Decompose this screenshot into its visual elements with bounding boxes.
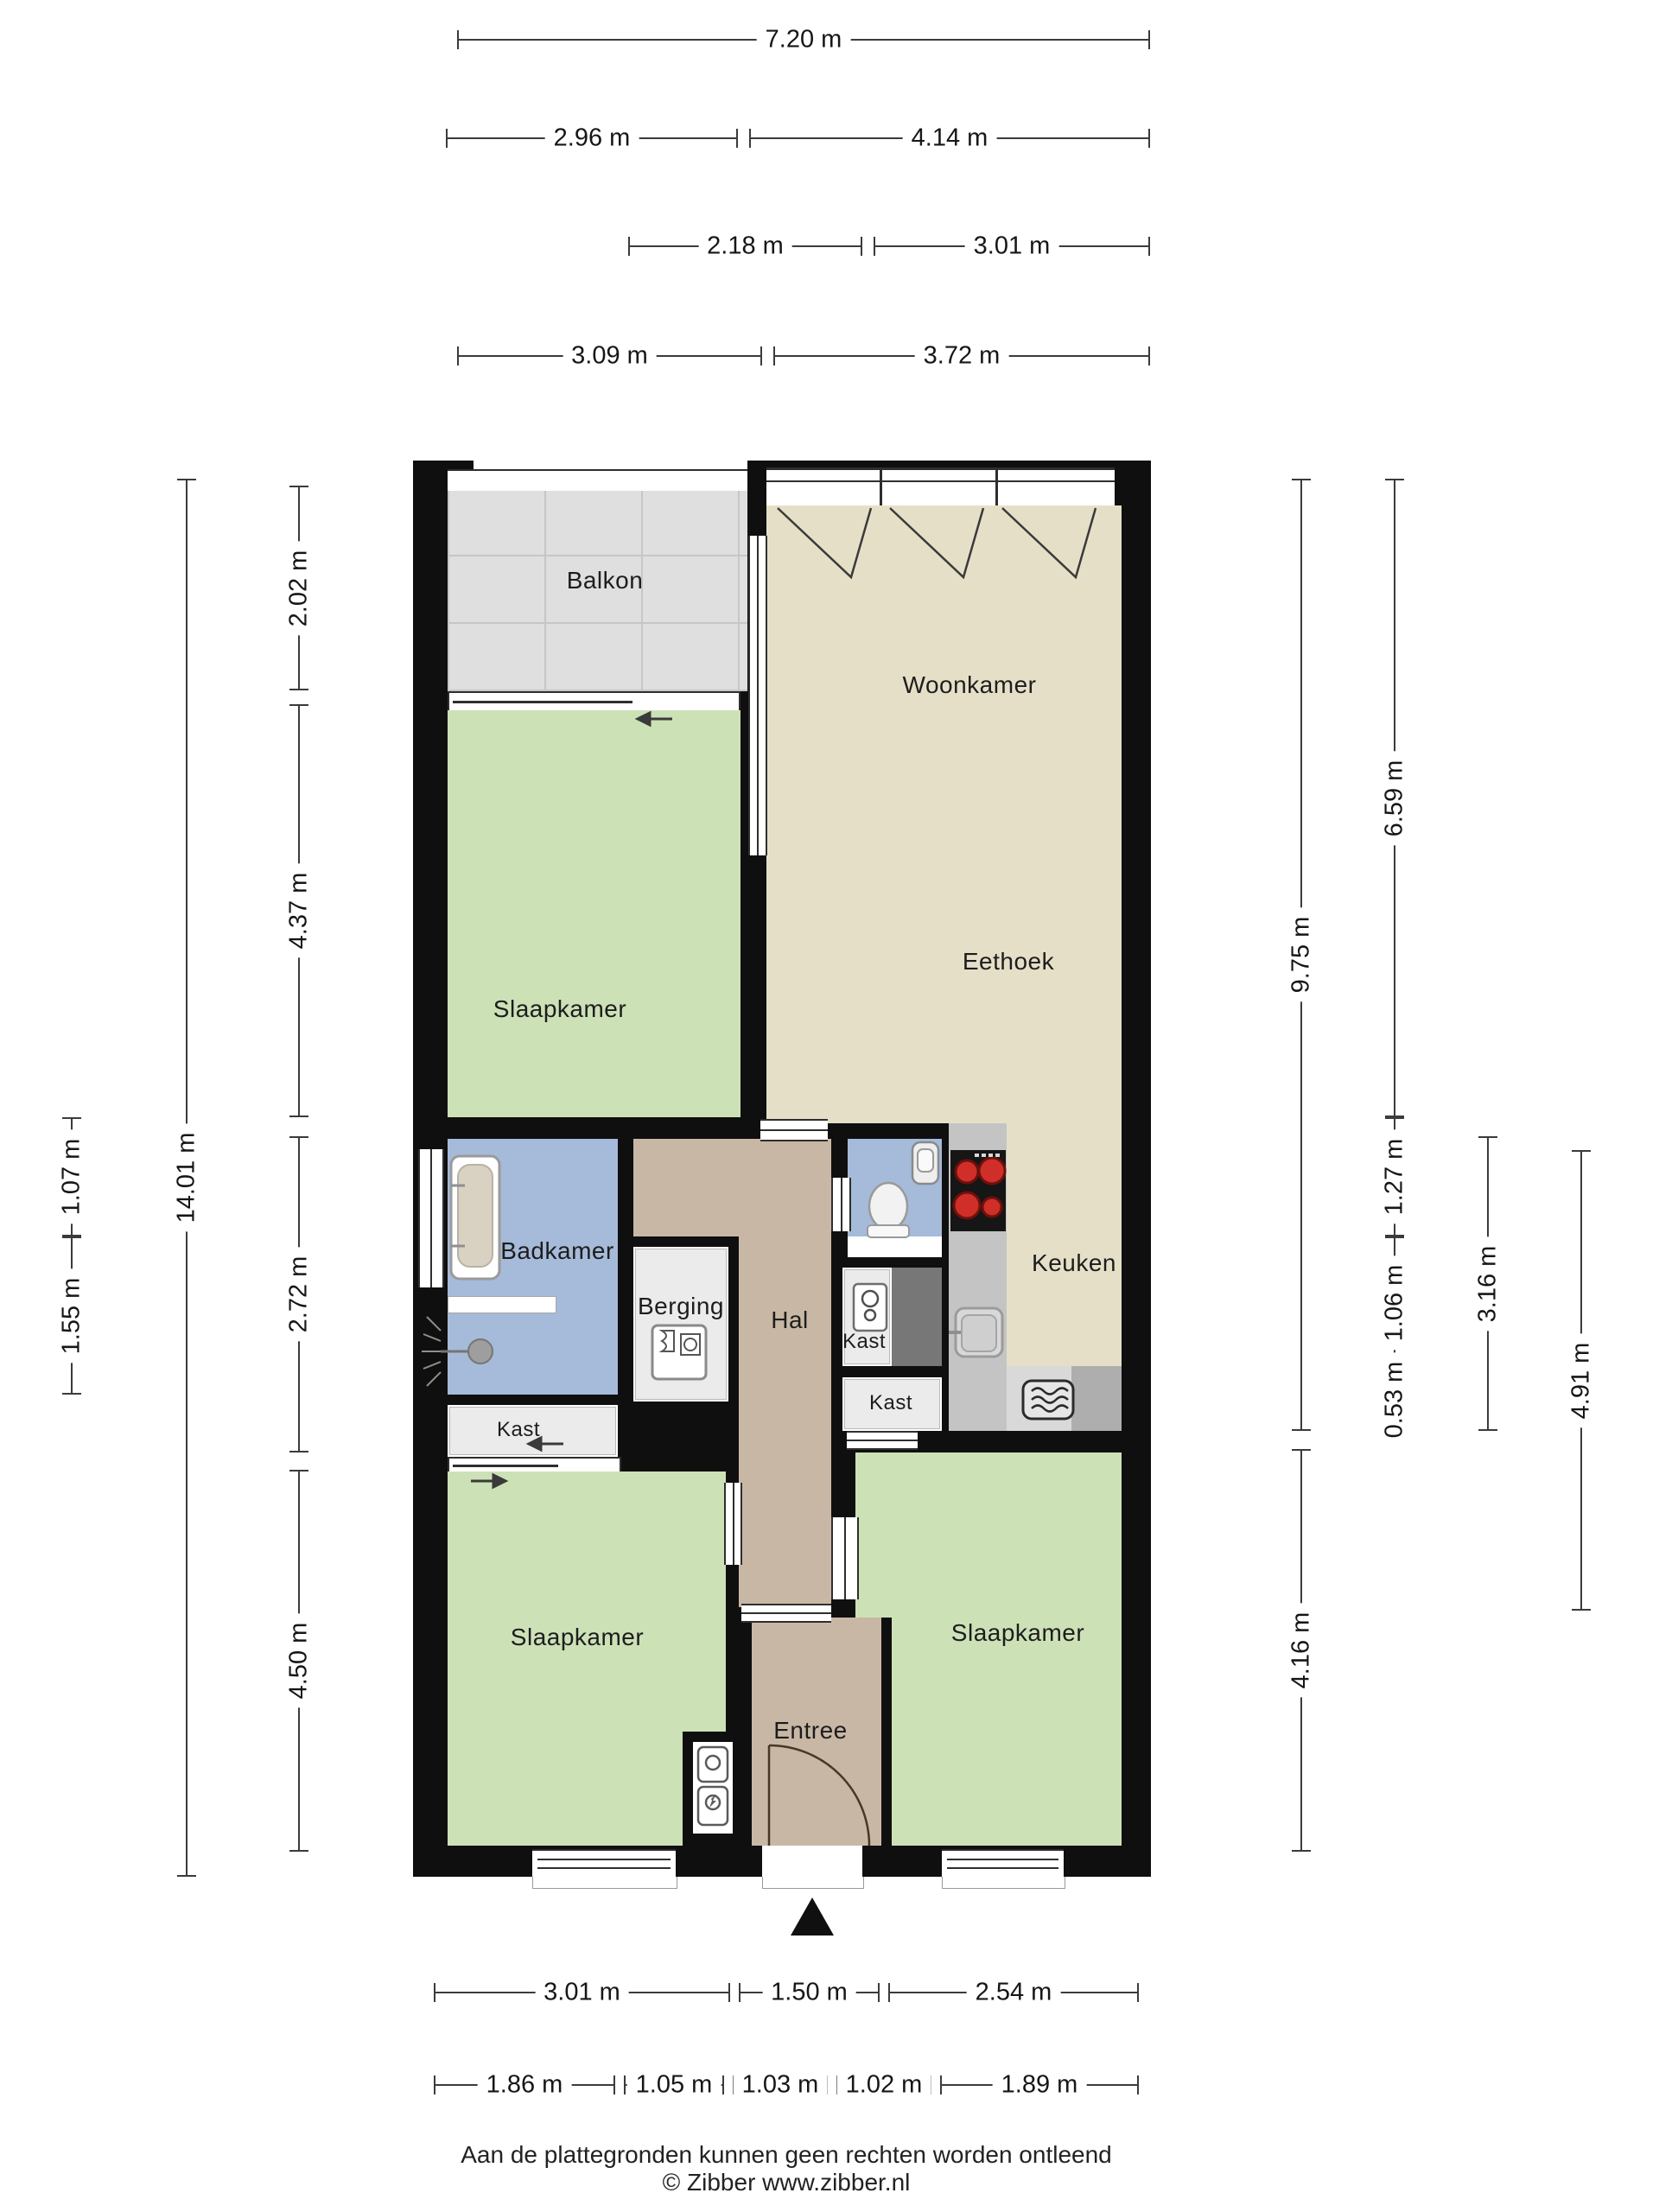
dimension-label: 4.50 m bbox=[285, 1614, 314, 1708]
room-label-balkon: Balkon bbox=[567, 567, 644, 594]
dimension-line-1.07-m: 1.07 m bbox=[57, 1117, 86, 1236]
entrance-arrow bbox=[791, 1897, 834, 1935]
dimension-line-1.55-m: 1.55 m bbox=[57, 1236, 86, 1395]
dimension-line-3.72-m: 3.72 m bbox=[773, 341, 1150, 371]
dimension-label: 4.16 m bbox=[1287, 1604, 1316, 1698]
dimension-label: 9.75 m bbox=[1287, 908, 1316, 1002]
dimension-line-4.16-m: 4.16 m bbox=[1287, 1449, 1316, 1852]
key-cabinet-icon bbox=[854, 1284, 887, 1331]
room-label-kast-badkamer: Kast bbox=[497, 1418, 540, 1442]
dimension-line-1.03-m: 1.03 m bbox=[733, 2070, 828, 2100]
dimension-label: 2.02 m bbox=[285, 541, 314, 635]
room-label-slaapkamer-rechts: Slaapkamer bbox=[951, 1619, 1084, 1647]
microwave-icon bbox=[1023, 1381, 1073, 1419]
meter-box-icons bbox=[698, 1747, 728, 1825]
dimension-line-3.09-m: 3.09 m bbox=[457, 341, 762, 371]
dimension-line-4.14-m: 4.14 m bbox=[749, 124, 1150, 153]
stove-icon bbox=[950, 1150, 1006, 1231]
toilet-sink-icon bbox=[912, 1142, 938, 1184]
dimension-line-1.05-m: 1.05 m bbox=[624, 2070, 724, 2100]
dimension-line-1.86-m: 1.86 m bbox=[434, 2070, 615, 2100]
dimension-label: 3.09 m bbox=[563, 342, 657, 371]
dimension-line-4.37-m: 4.37 m bbox=[284, 704, 314, 1117]
footer-line1: Aan de plattegronden kunnen geen rechten… bbox=[461, 2141, 1111, 2168]
room-label-entree: Entree bbox=[773, 1717, 848, 1745]
dimension-label: 1.03 m bbox=[734, 2071, 828, 2100]
dimension-label: 4.14 m bbox=[903, 124, 997, 153]
dimension-line-2.18-m: 2.18 m bbox=[628, 232, 862, 261]
slide-arrow-icons bbox=[471, 713, 672, 1487]
dimension-label: 2.96 m bbox=[545, 124, 639, 153]
dimension-label: 7.20 m bbox=[757, 26, 851, 54]
dimension-line-4.91-m: 4.91 m bbox=[1567, 1150, 1596, 1611]
dimension-line-2.96-m: 2.96 m bbox=[446, 124, 738, 153]
dimension-label: 2.18 m bbox=[698, 232, 792, 261]
dimension-line-2.02-m: 2.02 m bbox=[284, 486, 314, 690]
dimension-line-3.16-m: 3.16 m bbox=[1473, 1136, 1503, 1431]
room-label-kast-hal: Kast bbox=[842, 1330, 886, 1354]
dimension-label: 14.01 m bbox=[173, 1124, 201, 1232]
dimension-label: 1.07 m bbox=[58, 1130, 86, 1224]
dimension-line-1.27-m: 1.27 m bbox=[1380, 1117, 1409, 1236]
dimension-line-3.01-m: 3.01 m bbox=[874, 232, 1150, 261]
dimension-label: 3.01 m bbox=[965, 232, 1059, 261]
dimension-label: 4.91 m bbox=[1567, 1333, 1596, 1427]
dimension-label: 1.27 m bbox=[1381, 1130, 1409, 1224]
room-label-kast-keuken: Kast bbox=[869, 1391, 912, 1415]
dimension-label: 4.37 m bbox=[285, 864, 314, 958]
dimension-label: 1.50 m bbox=[762, 1979, 856, 2007]
dimension-label: 3.01 m bbox=[535, 1979, 629, 2007]
dimension-label: 1.55 m bbox=[58, 1268, 86, 1363]
kitchen-sink-icon bbox=[949, 1308, 1002, 1357]
dimension-line-1.89-m: 1.89 m bbox=[940, 2070, 1139, 2100]
dimension-line-1.50-m: 1.50 m bbox=[739, 1978, 880, 2007]
dimension-label: 1.05 m bbox=[627, 2071, 721, 2100]
window-swing-icons bbox=[778, 508, 1096, 577]
dimension-line-7.20-m: 7.20 m bbox=[457, 25, 1150, 54]
footer-credit: © Zibber www.zibber.nl bbox=[663, 2169, 911, 2196]
dimension-label: 3.72 m bbox=[915, 342, 1009, 371]
dimension-line-4.50-m: 4.50 m bbox=[284, 1470, 314, 1852]
dimension-label: 3.16 m bbox=[1474, 1236, 1503, 1331]
room-label-berging: Berging bbox=[638, 1293, 724, 1320]
dimension-line-14.01-m: 14.01 m bbox=[172, 479, 201, 1877]
footer-line2: © Zibber www.zibber.nl bbox=[663, 2169, 911, 2196]
washing-machine-icon bbox=[652, 1325, 706, 1379]
dimension-line-0.53-m: 0.53 m bbox=[1380, 1369, 1409, 1431]
room-label-slaapkamer-top: Slaapkamer bbox=[493, 995, 626, 1023]
dimension-label: 1.89 m bbox=[993, 2071, 1087, 2100]
dimension-line-1.02-m: 1.02 m bbox=[836, 2070, 931, 2100]
bathtub-icon bbox=[451, 1156, 499, 1279]
dimension-line-6.59-m: 6.59 m bbox=[1380, 479, 1409, 1117]
room-label-hal: Hal bbox=[771, 1306, 809, 1334]
dimension-line-1.06-m: 1.06 m bbox=[1380, 1236, 1409, 1369]
dimension-label: 1.02 m bbox=[837, 2071, 931, 2100]
front-door-arc bbox=[769, 1745, 869, 1846]
room-label-badkamer: Badkamer bbox=[500, 1237, 614, 1265]
dimension-line-3.01-m: 3.01 m bbox=[434, 1978, 730, 2007]
shower-head-icon bbox=[422, 1317, 493, 1386]
room-label-keuken: Keuken bbox=[1032, 1249, 1116, 1277]
dimension-line-2.72-m: 2.72 m bbox=[284, 1136, 314, 1452]
dimension-label: 1.86 m bbox=[478, 2071, 572, 2100]
toilet-icon bbox=[868, 1183, 909, 1237]
dimension-line-2.54-m: 2.54 m bbox=[888, 1978, 1139, 2007]
dimension-label: 2.72 m bbox=[285, 1248, 314, 1342]
dimension-label: 2.54 m bbox=[967, 1979, 1061, 2007]
floorplan-canvas: BalkonWoonkamerEethoekSlaapkamerBadkamer… bbox=[0, 0, 1659, 2212]
dimension-label: 0.53 m bbox=[1381, 1353, 1409, 1447]
footer-disclaimer: Aan de plattegronden kunnen geen rechten… bbox=[461, 2141, 1111, 2169]
room-label-eethoek: Eethoek bbox=[963, 948, 1054, 976]
fixtures-layer bbox=[0, 0, 1659, 2212]
dimension-line-9.75-m: 9.75 m bbox=[1287, 479, 1316, 1431]
dimension-label: 6.59 m bbox=[1381, 751, 1409, 845]
dimension-label: 1.06 m bbox=[1381, 1255, 1409, 1350]
room-label-slaapkamer-links: Slaapkamer bbox=[511, 1624, 644, 1651]
room-label-woonkamer: Woonkamer bbox=[903, 671, 1037, 699]
